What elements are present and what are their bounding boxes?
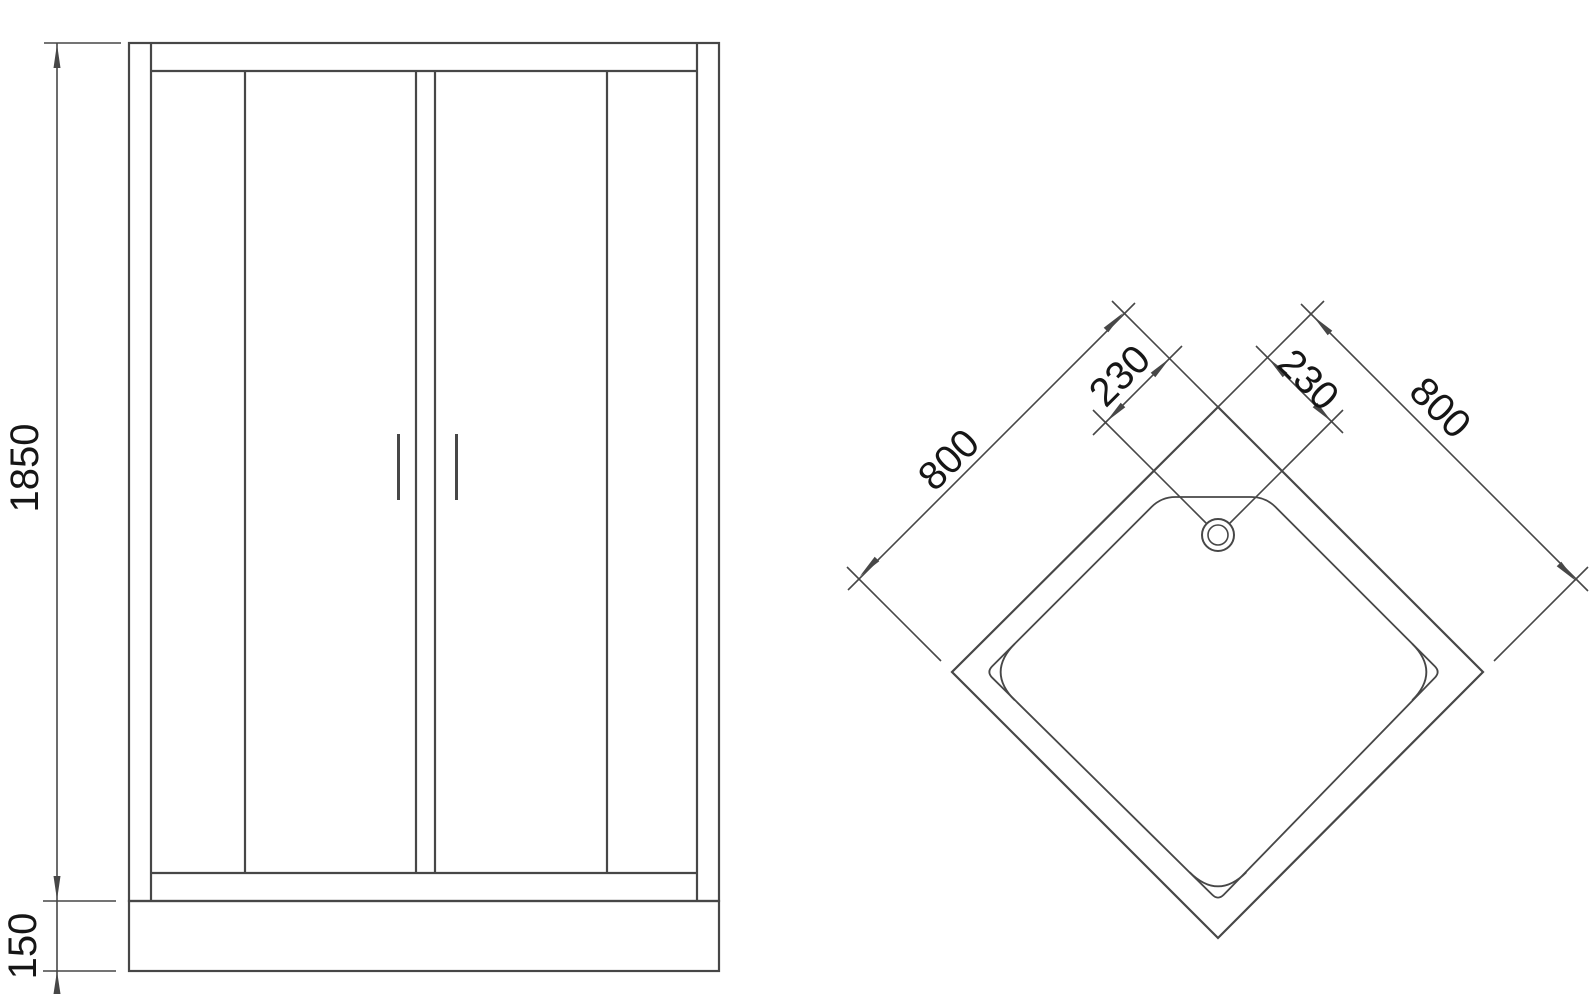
dimension-line-800-right <box>1301 304 1588 591</box>
front-elevation-view <box>129 43 719 971</box>
frame-outline <box>129 43 719 901</box>
dimension-line-800-left <box>848 303 1135 590</box>
tray-base-outline <box>129 901 719 971</box>
arrowhead-800-left-lower <box>860 557 879 576</box>
basin-floor-corner-right <box>1412 644 1426 701</box>
tray-outer-outline <box>952 407 1483 938</box>
drain-offset-right-label: 230 <box>1269 341 1347 419</box>
arrowhead-up-base <box>54 971 61 994</box>
technical-drawing-page: 1850 150 800 <box>0 0 1596 994</box>
arrowhead-800-right-upper <box>1313 316 1332 335</box>
extension-line-drain-right <box>1229 410 1343 524</box>
extension-line-drain-left <box>1093 410 1207 524</box>
height-dimension-label: 1850 <box>3 424 47 513</box>
arrowhead-800-right-lower <box>1557 562 1576 581</box>
arrowhead-up <box>54 44 61 68</box>
extension-line-right-corner <box>1494 567 1588 661</box>
edge-dimension-left-label: 800 <box>910 421 988 499</box>
base-height-dimension-label: 150 <box>1 913 45 980</box>
basin-floor-corner-left <box>1001 644 1015 701</box>
basin-floor-corner-bottom <box>1190 872 1247 886</box>
drain-offset-left-label: 230 <box>1081 337 1159 415</box>
edge-dimension-left-800: 800 <box>848 303 1135 590</box>
drain-offset-dimension-left-230: 230 <box>1081 337 1182 435</box>
height-dimension-1850: 1850 <box>3 43 121 901</box>
arrowhead-800-left-upper <box>1104 313 1123 332</box>
edge-dimension-right-800: 800 <box>1301 304 1588 591</box>
edge-dimension-right-label: 800 <box>1401 369 1479 447</box>
shower-enclosure-technical-drawing: 1850 150 800 <box>0 0 1596 994</box>
extension-line-left-corner <box>847 567 941 661</box>
drain-inner-circle <box>1208 525 1228 545</box>
tray-plan-view <box>952 407 1483 938</box>
base-height-dimension-150: 150 <box>1 901 116 994</box>
arrowhead-down <box>54 876 61 900</box>
basin-rim-outline <box>989 497 1437 898</box>
